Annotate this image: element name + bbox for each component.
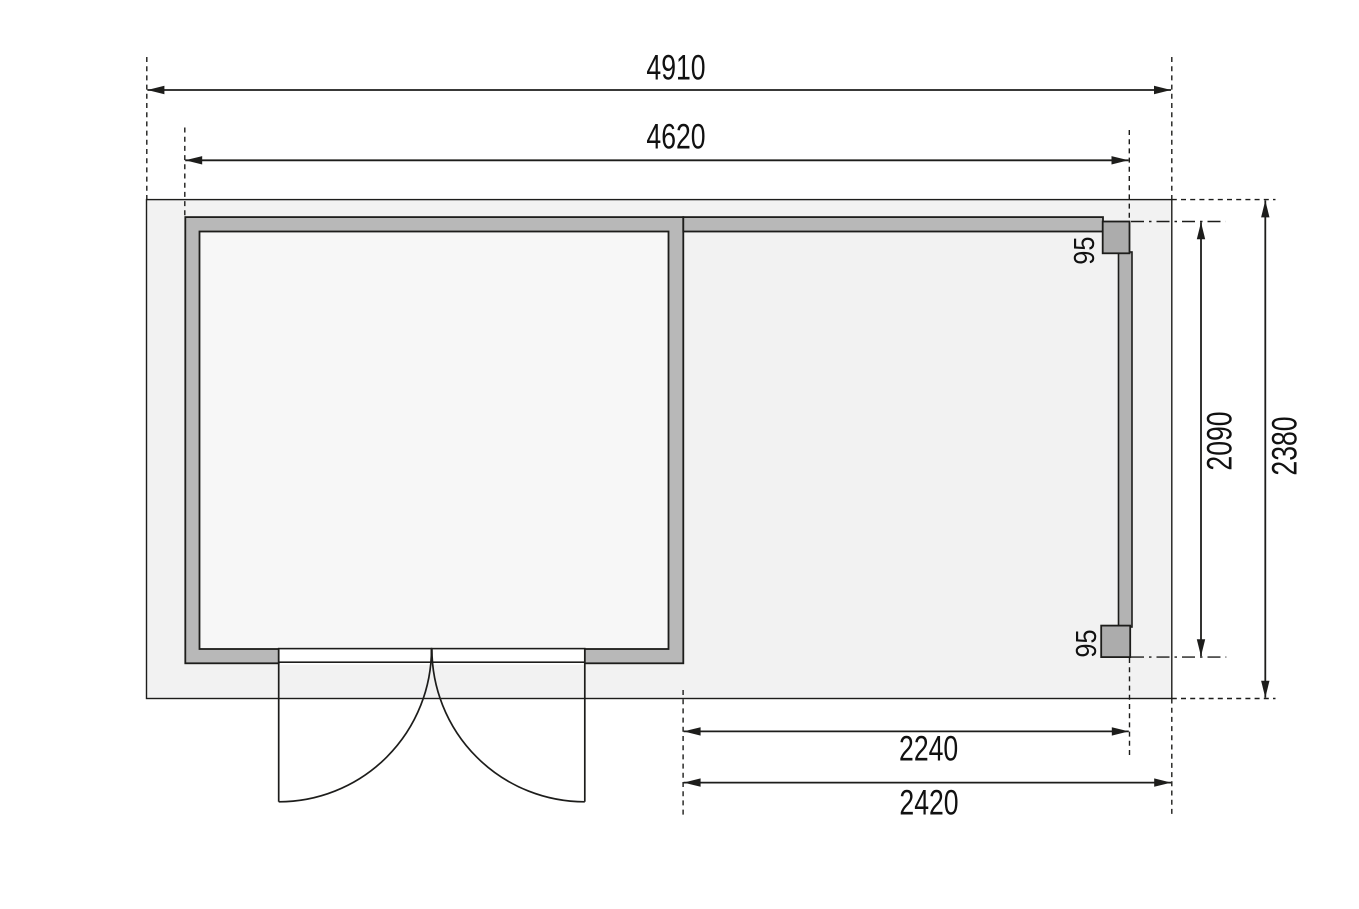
svg-text:95: 95 bbox=[1067, 236, 1100, 264]
svg-text:2420: 2420 bbox=[899, 783, 958, 822]
svg-text:4620: 4620 bbox=[646, 117, 705, 156]
svg-text:2090: 2090 bbox=[1200, 411, 1239, 470]
svg-text:4910: 4910 bbox=[646, 48, 705, 87]
svg-text:95: 95 bbox=[1069, 629, 1102, 657]
svg-text:2380: 2380 bbox=[1265, 416, 1304, 475]
svg-text:2240: 2240 bbox=[899, 729, 958, 768]
